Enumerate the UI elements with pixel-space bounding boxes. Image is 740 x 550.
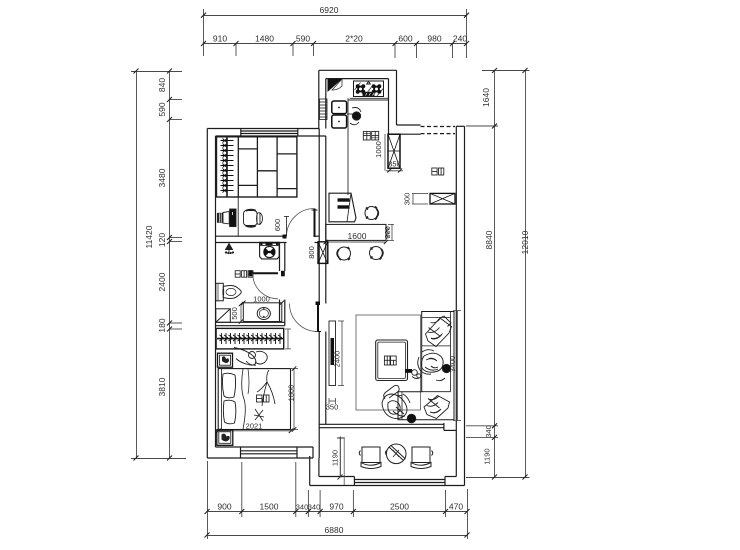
svg-text:500: 500 xyxy=(230,307,239,320)
svg-text:1000: 1000 xyxy=(253,295,270,304)
svg-text:6920: 6920 xyxy=(320,5,339,15)
svg-text:2400: 2400 xyxy=(333,351,342,368)
svg-text:1640: 1640 xyxy=(481,88,491,107)
svg-text:600: 600 xyxy=(398,34,412,44)
svg-text:590: 590 xyxy=(157,102,167,116)
svg-text:3480: 3480 xyxy=(157,168,167,187)
svg-text:1500: 1500 xyxy=(260,502,279,512)
svg-text:900: 900 xyxy=(217,502,231,512)
svg-text:2500: 2500 xyxy=(390,502,409,512)
svg-text:840: 840 xyxy=(157,78,167,92)
svg-text:590: 590 xyxy=(296,34,310,44)
svg-text:3810: 3810 xyxy=(157,377,167,396)
svg-text:340: 340 xyxy=(484,425,493,438)
svg-text:2400: 2400 xyxy=(157,272,167,291)
svg-text:240: 240 xyxy=(453,34,467,44)
svg-text:8840: 8840 xyxy=(484,230,494,249)
svg-text:340: 340 xyxy=(296,503,309,512)
svg-text:300: 300 xyxy=(403,193,412,206)
svg-text:180: 180 xyxy=(157,318,167,332)
svg-text:2021: 2021 xyxy=(246,422,263,431)
svg-text:980: 980 xyxy=(427,34,441,44)
svg-text:2*20: 2*20 xyxy=(345,34,363,44)
svg-text:1600: 1600 xyxy=(348,231,367,241)
svg-text:300: 300 xyxy=(383,226,392,239)
svg-text:470: 470 xyxy=(449,502,463,512)
svg-text:350: 350 xyxy=(388,160,401,169)
svg-text:910: 910 xyxy=(213,34,227,44)
svg-text:6880: 6880 xyxy=(325,525,344,535)
svg-text:11420: 11420 xyxy=(144,225,154,248)
svg-text:1000: 1000 xyxy=(374,141,383,158)
svg-text:600: 600 xyxy=(273,219,282,232)
svg-text:1190: 1190 xyxy=(331,450,340,466)
svg-text:800: 800 xyxy=(307,246,316,259)
svg-text:350: 350 xyxy=(326,403,339,412)
svg-text:340: 340 xyxy=(308,503,321,512)
svg-text:3400: 3400 xyxy=(448,356,457,373)
svg-text:120: 120 xyxy=(157,233,167,247)
svg-text:1190: 1190 xyxy=(483,448,492,464)
svg-text:1480: 1480 xyxy=(255,34,274,44)
svg-text:12010: 12010 xyxy=(520,230,530,254)
svg-text:1800: 1800 xyxy=(287,385,296,402)
svg-text:970: 970 xyxy=(329,502,343,512)
